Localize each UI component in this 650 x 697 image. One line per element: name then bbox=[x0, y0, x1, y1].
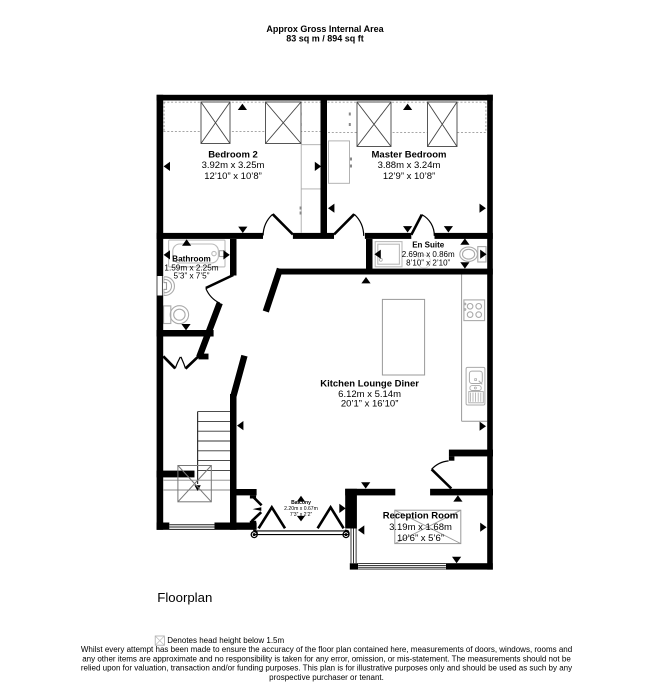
svg-text:12’9” x 10’8”: 12’9” x 10’8” bbox=[383, 171, 435, 182]
svg-text:Bedroom 2: Bedroom 2 bbox=[208, 149, 258, 160]
svg-text:7’3” x 2’2”: 7’3” x 2’2” bbox=[290, 512, 313, 518]
svg-text:Approx Gross Internal Area: Approx Gross Internal Area bbox=[266, 24, 384, 34]
svg-text:prospective purchaser or tenan: prospective purchaser or tenant. bbox=[269, 673, 384, 682]
svg-text:En Suite: En Suite bbox=[412, 240, 445, 249]
svg-text:20’1” x 16’10”: 20’1” x 16’10” bbox=[341, 398, 399, 409]
svg-text:83 sq m / 894 sq ft: 83 sq m / 894 sq ft bbox=[286, 33, 364, 43]
svg-text:Balcony: Balcony bbox=[291, 500, 311, 506]
svg-text:3.19m x 1.68m: 3.19m x 1.68m bbox=[389, 522, 452, 533]
svg-text:Whilst every attempt has been: Whilst every attempt has been made to en… bbox=[81, 645, 572, 654]
svg-text:relied upon for valuation, tra: relied upon for valuation, transaction a… bbox=[81, 664, 572, 673]
svg-text:10’6” x 5’6”: 10’6” x 5’6” bbox=[397, 533, 444, 544]
svg-text:Floorplan: Floorplan bbox=[157, 590, 212, 605]
svg-text:2.20m x 0.67m: 2.20m x 0.67m bbox=[284, 506, 318, 512]
svg-text:Reception Room: Reception Room bbox=[383, 511, 458, 522]
svg-text:Master Bedroom: Master Bedroom bbox=[372, 149, 447, 160]
svg-text:3.92m x 3.25m: 3.92m x 3.25m bbox=[202, 160, 265, 171]
svg-text:5’3” x 7’5”: 5’3” x 7’5” bbox=[174, 271, 210, 280]
svg-text:12’10” x 10’8”: 12’10” x 10’8” bbox=[204, 171, 262, 182]
svg-text:3.88m x 3.24m: 3.88m x 3.24m bbox=[378, 160, 441, 171]
svg-text:any other items are approximat: any other items are approximate and no r… bbox=[82, 654, 571, 663]
svg-text:Denotes head height below 1.5m: Denotes head height below 1.5m bbox=[167, 636, 284, 645]
svg-text:8’10” x 2’10”: 8’10” x 2’10” bbox=[406, 258, 450, 267]
